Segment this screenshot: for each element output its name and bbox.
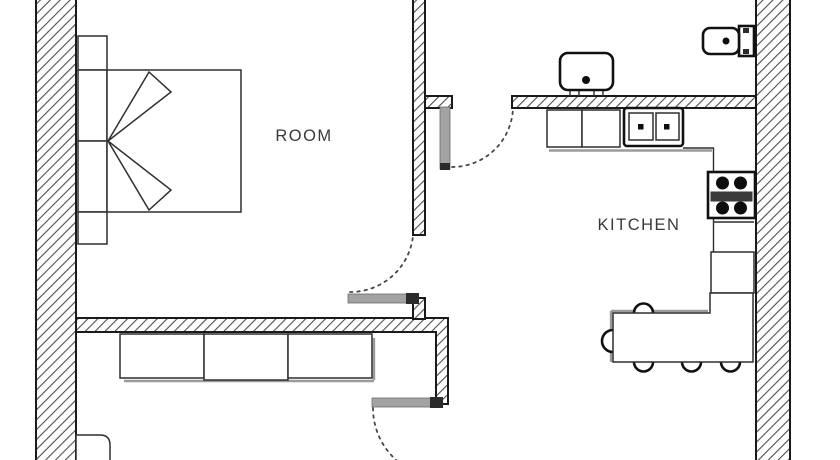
base-cabinet-1 (547, 110, 582, 147)
sink-drain-right (664, 124, 670, 130)
bed-icon (107, 70, 241, 212)
toilet-hinge-left (743, 28, 749, 33)
headboard-upper (78, 70, 107, 141)
door-swing-arc (373, 408, 443, 460)
door-hinge-block (406, 293, 419, 304)
basin-drain-dot (582, 76, 590, 84)
bedroom: ROOM (78, 36, 333, 244)
sink-drain-left (638, 124, 644, 130)
middle-wall (413, 0, 425, 235)
door-swing-arc (350, 236, 413, 292)
kitchen: KITCHEN (547, 108, 755, 372)
lower-exit-door (372, 397, 443, 460)
left-wall (36, 0, 76, 460)
stove-band (711, 192, 753, 202)
chair-icon (682, 362, 701, 372)
sideboard-section-2 (204, 334, 288, 380)
door-leaf (348, 294, 408, 303)
doors (348, 107, 513, 460)
burner (734, 202, 747, 215)
floor-plan: ROOM (0, 0, 840, 460)
room-label: ROOM (275, 127, 332, 145)
wash-basin-icon (560, 53, 613, 90)
chair-icon (634, 304, 653, 314)
toilet-flush-dot (723, 38, 730, 45)
lower-room (76, 334, 374, 460)
chair-icon (602, 330, 613, 352)
bathroom (560, 26, 754, 96)
sideboard-section-3 (288, 334, 372, 378)
small-cabinet (76, 435, 110, 460)
dining-table-icon (613, 293, 753, 362)
burner (716, 202, 729, 215)
door-swing-arc (452, 108, 513, 167)
headboard-lower (78, 141, 107, 212)
door-hinge-block (430, 397, 443, 408)
bedside-unit-top (78, 36, 107, 70)
kitchen-bath-wall (512, 96, 756, 108)
toilet-hinge-right (743, 49, 749, 54)
door-jamb-stub (425, 96, 452, 108)
toilet-icon (703, 28, 739, 54)
floor-plan-drawing: ROOM (0, 0, 840, 460)
chair-icon (721, 362, 740, 372)
burner (734, 177, 747, 190)
right-wall (756, 0, 790, 460)
chair-icon (634, 362, 653, 372)
kitchen-hall-door (440, 107, 513, 170)
counter-cabinet (711, 252, 754, 293)
door-leaf-cap (440, 163, 450, 170)
door-leaf (440, 107, 450, 169)
room-lower-door (348, 236, 419, 304)
sideboard-section-1 (120, 334, 204, 378)
burner (716, 177, 729, 190)
door-leaf (372, 398, 432, 407)
base-cabinet-2 (582, 110, 620, 147)
dining-set (602, 293, 753, 372)
stove-icon (708, 172, 755, 218)
kitchen-label: KITCHEN (598, 216, 681, 234)
bedside-unit-bottom (78, 212, 107, 244)
